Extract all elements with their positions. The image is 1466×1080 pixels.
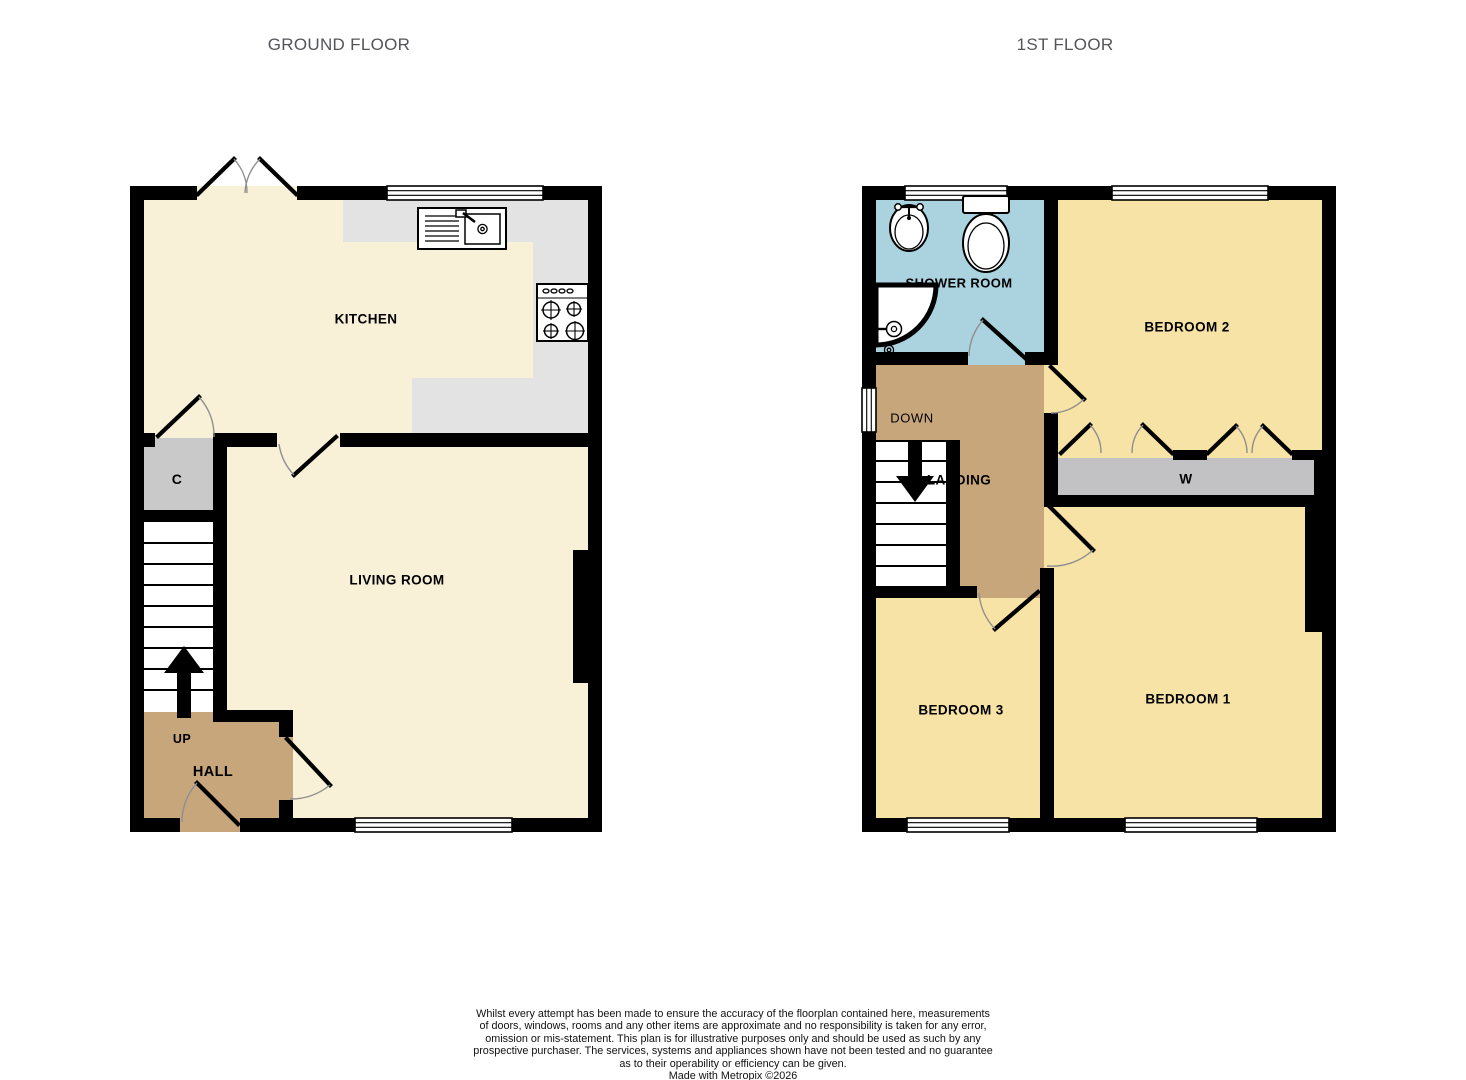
chimney-breast [573,550,602,683]
window [1112,186,1268,200]
window [355,818,512,832]
disclaimer-line: as to their operability or efficiency ca… [473,1058,993,1070]
stairs-direction-down-label: DOWN [890,411,934,426]
window [862,388,876,432]
room-label-hall: HALL [193,764,233,780]
disclaimer-line: prospective purchaser. The services, sys… [473,1045,993,1057]
floorplan-page: GROUND FLOOR 1ST FLOOR KITCHEN C LIVING … [0,0,1466,1080]
room-label-living-room: LIVING ROOM [349,573,444,588]
room-label-bedroom-3: BEDROOM 3 [918,703,1003,718]
room-label-wardrobe: W [1179,472,1192,487]
disclaimer-line: omission or mis-statement. This plan is … [473,1033,993,1045]
disclaimer-line: Whilst every attempt has been made to en… [473,1008,993,1020]
disclaimer-line: of doors, windows, rooms and any other i… [473,1020,993,1032]
basin-icon [890,204,928,251]
room-label-kitchen: KITCHEN [335,312,398,327]
ground-floor-title: GROUND FLOOR [268,35,410,55]
window [907,818,1009,832]
stairs-direction-up-label: UP [173,732,191,746]
floorplan-canvas [0,0,1466,1080]
room-label-bedroom-2: BEDROOM 2 [1144,320,1229,335]
metropix-credit: Made with Metropix ©2026 [473,1070,993,1080]
first-floor-title: 1ST FLOOR [1017,35,1114,55]
ground-floor-plan [130,159,602,832]
room-label-bedroom-1: BEDROOM 1 [1145,692,1230,707]
chimney-breast [1305,505,1336,632]
room-label-cupboard: C [172,471,183,487]
toilet-icon [963,196,1009,272]
window [1125,818,1257,832]
stove-icon [537,284,588,341]
window [387,186,543,200]
kitchen-sink-icon [418,208,506,249]
room-label-landing: LANDING [927,473,991,488]
disclaimer-text: Whilst every attempt has been made to en… [473,1008,993,1080]
room-label-shower-room: SHOWER ROOM [906,276,1013,291]
